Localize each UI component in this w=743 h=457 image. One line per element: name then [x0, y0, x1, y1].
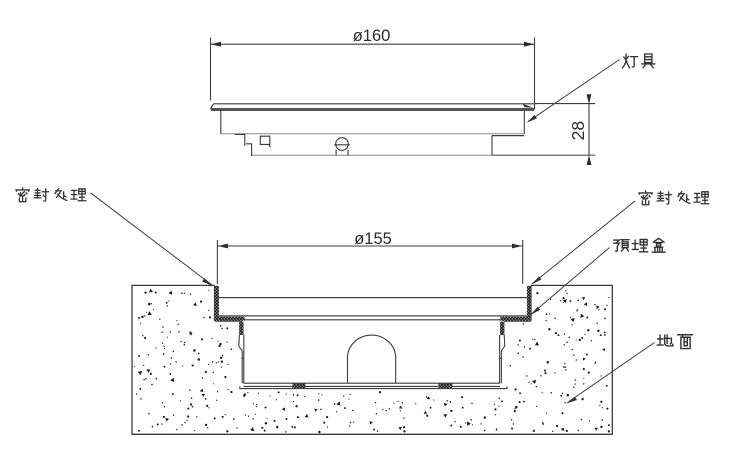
svg-text:ø160: ø160 [353, 27, 391, 45]
svg-text:ø155: ø155 [354, 230, 392, 248]
svg-text:28: 28 [568, 121, 588, 140]
